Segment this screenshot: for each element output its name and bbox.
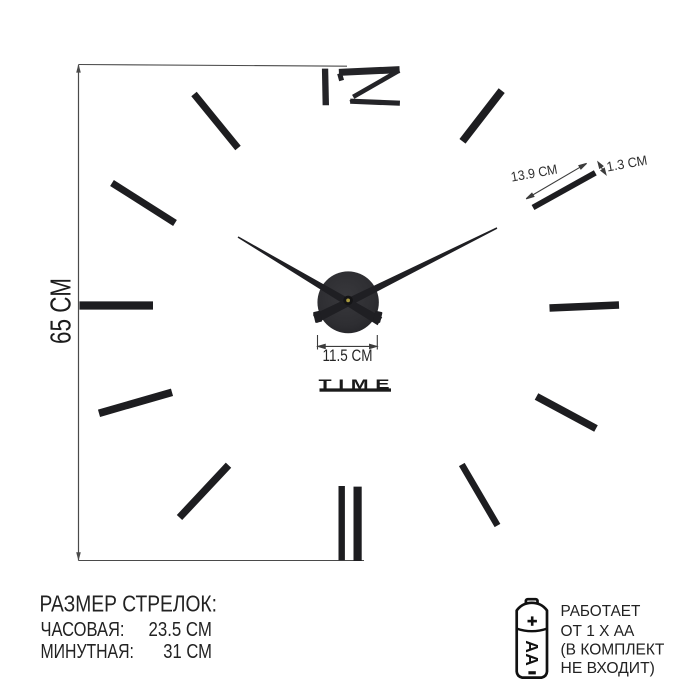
svg-text:ОТ 1 Х АА: ОТ 1 Х АА [561,623,635,640]
svg-text:23.5 СМ: 23.5 СМ [149,617,212,640]
svg-text:31 СМ: 31 СМ [163,639,212,662]
svg-text:65 СМ: 65 СМ [46,278,77,344]
svg-text:НЕ ВХОДИТ): НЕ ВХОДИТ) [561,660,655,677]
svg-text:11.5 CM: 11.5 CM [323,347,373,366]
svg-text:МИНУТНАЯ:: МИНУТНАЯ: [41,640,134,662]
svg-text:РАЗМЕР СТРЕЛОК:: РАЗМЕР СТРЕЛОК: [40,592,217,617]
svg-text:РАБОТАЕТ: РАБОТАЕТ [561,603,641,620]
svg-text:(В КОМПЛЕКТ: (В КОМПЛЕКТ [561,641,665,658]
svg-text:AA: AA [522,640,542,666]
svg-text:ЧАСОВАЯ:: ЧАСОВАЯ: [41,617,125,640]
